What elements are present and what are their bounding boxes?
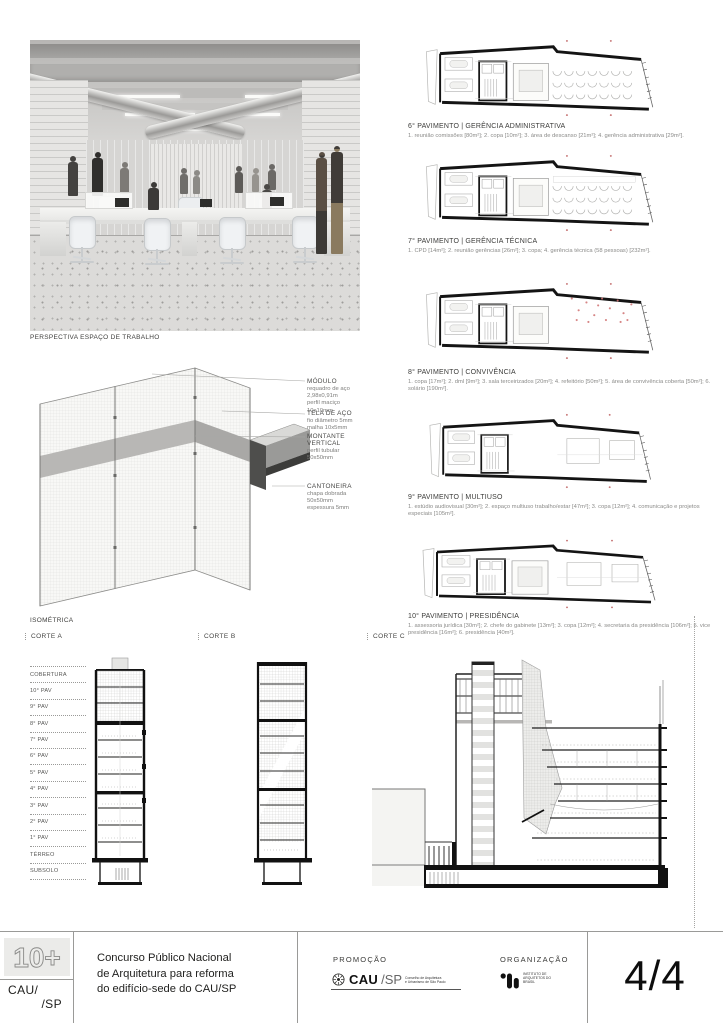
plan-legend: 1. reunião comissões [80m²]; 2. copa [10… [408, 133, 712, 140]
annotation-tela: TELA DE AÇO fio diâmetro 5mm malha 10x5m… [307, 410, 412, 432]
office-chair [140, 218, 174, 272]
page-number: 4/4 [587, 952, 723, 1000]
annotation-montante: MONTANTE VERTICAL perfil tubular 50x50mm [307, 433, 412, 462]
plan-title: 6° PAVIMENTO | GERÊNCIA ADMINISTRATIVA [408, 123, 712, 130]
floor-plan-7 [417, 153, 712, 233]
floor-plan-9 [417, 412, 712, 490]
cau-seal-icon [331, 972, 346, 987]
cau-sp-logo: CAU/SP Conselho de Arquitetura e Urbanis… [331, 972, 481, 990]
cau-sp-wordmark: CAU/ /SP [8, 984, 66, 1011]
plan-caption-10: 10° PAVIMENTO | PRESIDÊNCIA 1. assessori… [408, 613, 712, 637]
competition-title: Concurso Público Nacional de Arquitetura… [97, 951, 282, 998]
floor-label: COBERTURA [30, 667, 86, 683]
office-chair [215, 217, 249, 271]
isometric-drawing [32, 356, 322, 616]
corte-a-label: CORTE A [25, 633, 62, 640]
plan-caption-9: 9° PAVIMENTO | MULTIUSO 1. estúdio audio… [408, 494, 712, 518]
floor-label: SUBSOLO [30, 864, 86, 880]
corte-b-label: CORTE B [198, 633, 236, 640]
floor-plan-6 [417, 38, 712, 118]
footer-top-rule [0, 931, 723, 932]
tenplus-text: 10+ [13, 942, 61, 973]
floor-label: 8° PAV [30, 716, 86, 732]
org-label: ORGANIZAÇÃO [500, 955, 569, 964]
perspective-render [30, 40, 360, 331]
floor-label: 4° PAV [30, 782, 86, 798]
floor-label: 1° PAV [30, 831, 86, 847]
floor-label: 3° PAV [30, 798, 86, 814]
floor-plan-10 [417, 538, 712, 610]
iab-logo-icon [500, 972, 520, 989]
office-chair [65, 216, 99, 270]
plan-caption-6: 6° PAVIMENTO | GERÊNCIA ADMINISTRATIVA 1… [408, 123, 712, 140]
plan-caption-7: 7° PAVIMENTO | GERÊNCIA TÉCNICA 1. CPD [… [408, 238, 712, 255]
floor-label: TÉRREO [30, 847, 86, 863]
perspective-caption: PERSPECTIVA ESPAÇO DE TRABALHO [30, 334, 160, 341]
iab-logo: INSTITUTO DE ARQUITETOS DO BRASIL [500, 972, 551, 989]
isometric-caption: ISOMÉTRICA [30, 617, 73, 624]
fold-line [694, 616, 695, 928]
floor-label: 6° PAV [30, 749, 86, 765]
promo-label: PROMOÇÃO [333, 955, 387, 964]
plan-caption-8: 8° PAVIMENTO | CONVIVÊNCIA 1. copa [17m²… [408, 369, 712, 393]
floor-label: 5° PAV [30, 765, 86, 781]
floor-plan-8 [417, 281, 712, 361]
tenplus-logo: 10+ [4, 938, 70, 976]
presentation-board: PERSPECTIVA ESPAÇO DE TRABALHO 6° PAVIME… [0, 0, 723, 1023]
floor-label: 2° PAV [30, 815, 86, 831]
corte-b-drawing [250, 646, 314, 892]
floor-label: 7° PAV [30, 733, 86, 749]
floor-label: 9° PAV [30, 700, 86, 716]
floor-label: 10° PAV [30, 683, 86, 699]
corte-a-drawing [86, 646, 154, 892]
corte-c-drawing [372, 646, 712, 910]
annotation-cantoneira: CANTONEIRA chapa dobrada 50x50mm espessu… [307, 483, 412, 513]
corte-c-label: CORTE C [367, 633, 405, 640]
floor-labels: COBERTURA10° PAV9° PAV8° PAV7° PAV6° PAV… [30, 666, 86, 880]
